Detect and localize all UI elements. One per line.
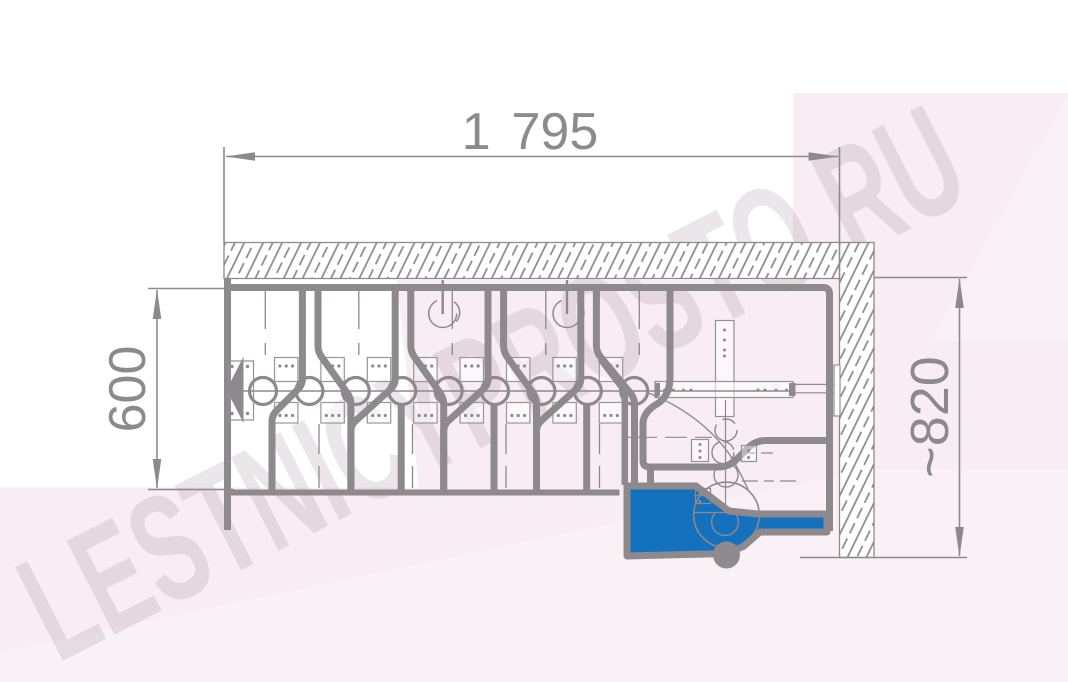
svg-text:600: 600 (99, 346, 157, 433)
svg-text:~820: ~820 (900, 356, 960, 478)
svg-text:1 795: 1 795 (462, 103, 599, 161)
